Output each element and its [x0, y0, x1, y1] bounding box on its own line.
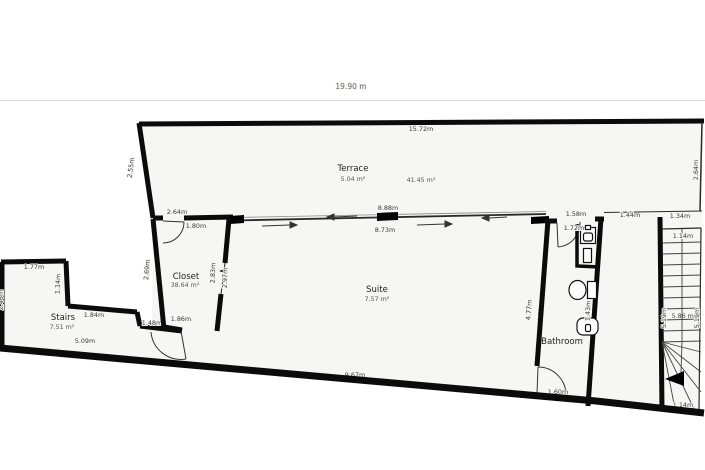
dim-terrace-top: 15.72m [409, 125, 434, 133]
dim-terrace-right: 2.64m [692, 160, 700, 180]
scale-ruler: 19.90 m [0, 82, 705, 101]
dim-suite-right: 4.77m [524, 299, 533, 320]
dim-slider-top: 8.88m [378, 204, 398, 212]
shelf-icon [584, 249, 592, 263]
terrace-top-wall [139, 121, 704, 124]
dim-bathroom-top: 1.58m [566, 210, 586, 218]
overall-width-label: 19.90 m [335, 82, 366, 91]
dim-hall-bottom: 1.48m [142, 319, 162, 327]
slider-block [377, 212, 398, 221]
dim-stairs-bottom: 5.09m [75, 337, 95, 345]
terrace-floor [139, 121, 703, 219]
floor-plan-canvas: 19.90 m Terrace 5.04 m² 41.45 m² 15.72m … [0, 0, 705, 470]
stairs-top-wall [1, 261, 66, 262]
room-area-terrace: 5.04 m² [341, 176, 366, 183]
room-area-open: 41.45 m² [407, 177, 436, 184]
stairs-step-wall [66, 261, 68, 306]
dim-stairwell-width-top: 1.14m [673, 232, 693, 240]
dim-corridor-top: 1.44m [620, 211, 640, 219]
dim-stairs-top: 1.77m [24, 263, 44, 271]
dim-closet-bottom: 1.86m [171, 315, 191, 323]
dim-bathroom-door: 1.72m [564, 224, 584, 232]
room-name-stairs: Stairs [51, 313, 76, 323]
dim-stairs-mid: 1.84m [84, 311, 104, 319]
dim-terrace-left: 2.55m [126, 157, 137, 178]
dim-closet-right: 2.83m [209, 263, 218, 284]
dim-closet-opening: 2.97m [221, 268, 230, 289]
dim-stairwell-top: 1.34m [670, 212, 690, 220]
dim-stairs-step: 1.14m [53, 273, 62, 294]
dim-stairwell-left: 5.19m [660, 308, 668, 328]
dim-stairwell-right: 5.19m [693, 308, 701, 328]
room-area-suite: 7.57 m² [365, 296, 390, 303]
closet-bottom-wall [164, 327, 182, 330]
corridor: 1.44m [620, 211, 640, 219]
dim-stairs-left: 2.46m [0, 290, 5, 310]
slider-block [230, 215, 244, 224]
floor-plan-svg: 19.90 m Terrace 5.04 m² 41.45 m² 15.72m … [0, 0, 705, 470]
room-name-closet: Closet [173, 272, 200, 282]
room-name-terrace: Terrace [337, 164, 369, 174]
dim-bathroom-fixture: 1.43m [583, 300, 592, 321]
closet-top-wall [184, 217, 233, 218]
dim-closet-left: 2.69m [142, 259, 152, 280]
dim-closet-top: 2.64m [167, 208, 187, 216]
room-name-suite: Suite [366, 285, 388, 295]
hall-step-wall [137, 312, 140, 326]
toilet-icon [569, 281, 597, 300]
room-area-closet: 38.64 m² [171, 282, 200, 289]
dim-slider-bottom: 8.73m [375, 226, 395, 234]
room-name-bathroom: Bathroom [541, 337, 583, 347]
dim-closet-door: 1.80m [186, 222, 206, 230]
room-area-stairs: 7.51 m² [50, 324, 75, 331]
